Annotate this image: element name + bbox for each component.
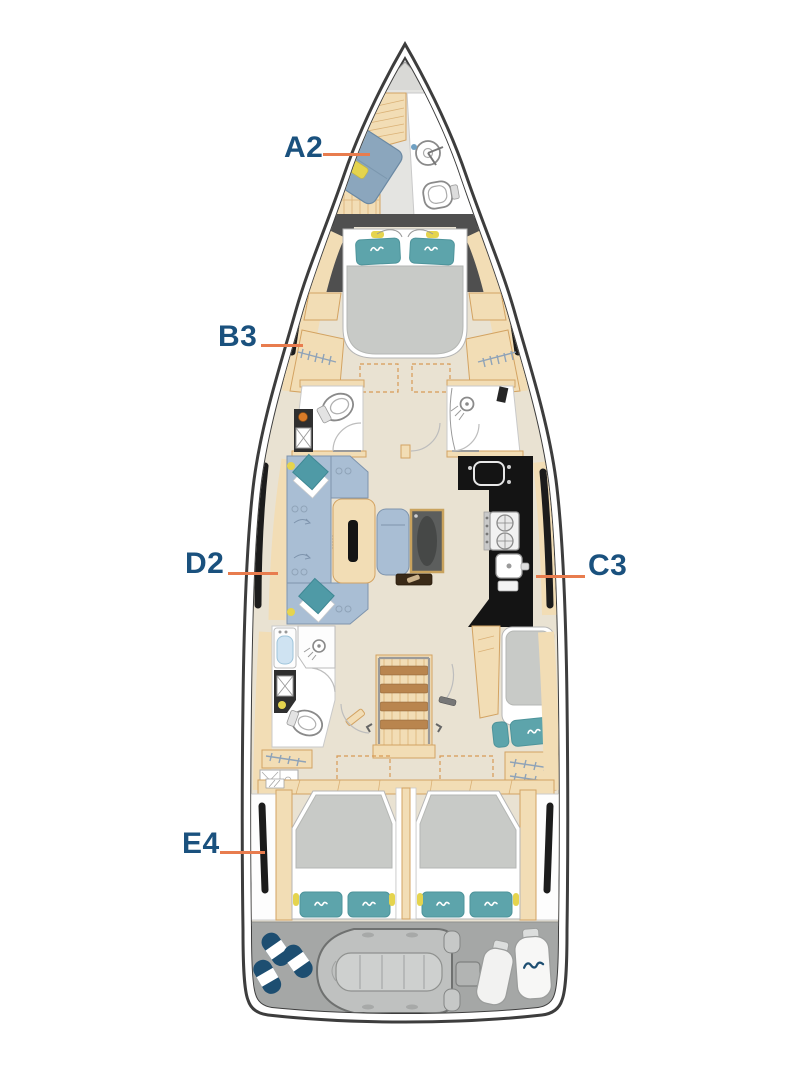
label-b3: B3: [218, 322, 257, 352]
sink-icon: [277, 676, 293, 696]
sofa-light-icon: [287, 608, 295, 616]
stove-icon: [484, 512, 519, 550]
leader-line-a2: [323, 153, 370, 156]
salon-table: [333, 499, 375, 583]
reading-light-icon: [513, 893, 519, 906]
sofa-light-icon: [287, 462, 295, 470]
chart-shelf: [396, 574, 432, 585]
stair-tread: [380, 720, 428, 729]
dinghy: [317, 929, 480, 1013]
label-c3: C3: [588, 551, 627, 581]
pillow: [355, 238, 400, 265]
label-e4: E4: [182, 829, 220, 859]
table-mast-slot: [348, 520, 358, 562]
owner-bed: [343, 229, 467, 358]
label-a2: A2: [284, 133, 323, 163]
leader-line-e4: [220, 851, 265, 854]
hull-window-port-aft: [262, 806, 265, 890]
nav-seat: [377, 509, 409, 575]
reading-light-icon: [389, 893, 395, 906]
pillow: [409, 238, 454, 265]
reading-light-icon: [293, 893, 299, 906]
reading-light-icon: [426, 231, 439, 238]
transom-garage: [242, 922, 570, 1018]
aft-bed-starboard: [416, 791, 520, 919]
sink-icon: [296, 428, 311, 448]
reading-light-icon: [417, 893, 423, 906]
deck-plan-drawing: [0, 0, 810, 1080]
vanity-knob-icon: [299, 413, 308, 422]
side-trim-starboard-aft: [546, 632, 552, 790]
label-d2: D2: [185, 549, 224, 579]
leader-line-b3: [261, 344, 303, 347]
aft-bathroom: [272, 626, 335, 747]
chart-table: [411, 510, 443, 572]
cabin-door: [401, 445, 410, 458]
nightstand-port: [304, 293, 341, 320]
stair-tread: [380, 684, 428, 693]
stair-tread: [380, 666, 428, 675]
interior: [242, 62, 570, 1018]
bath-tub-icon: [274, 628, 296, 668]
aft-bed-port: [292, 791, 396, 919]
shower-stall: [298, 626, 335, 668]
pillow: [492, 721, 510, 747]
companionway-stairs: [367, 655, 441, 758]
reading-light-icon: [371, 231, 384, 238]
deck-plan-canvas: A2 B3 D2 C3 E4: [0, 0, 810, 1080]
vanity-light-icon: [278, 701, 286, 709]
forward-shower-starboard: [447, 380, 523, 457]
stair-tread: [380, 702, 428, 711]
hull-window-starboard-aft: [547, 806, 550, 890]
leader-line-d2: [228, 572, 278, 575]
leader-line-c3: [536, 575, 585, 578]
forward-head-port: [292, 380, 366, 457]
nightstand-starboard: [469, 293, 506, 320]
outboard-bracket: [456, 962, 480, 986]
